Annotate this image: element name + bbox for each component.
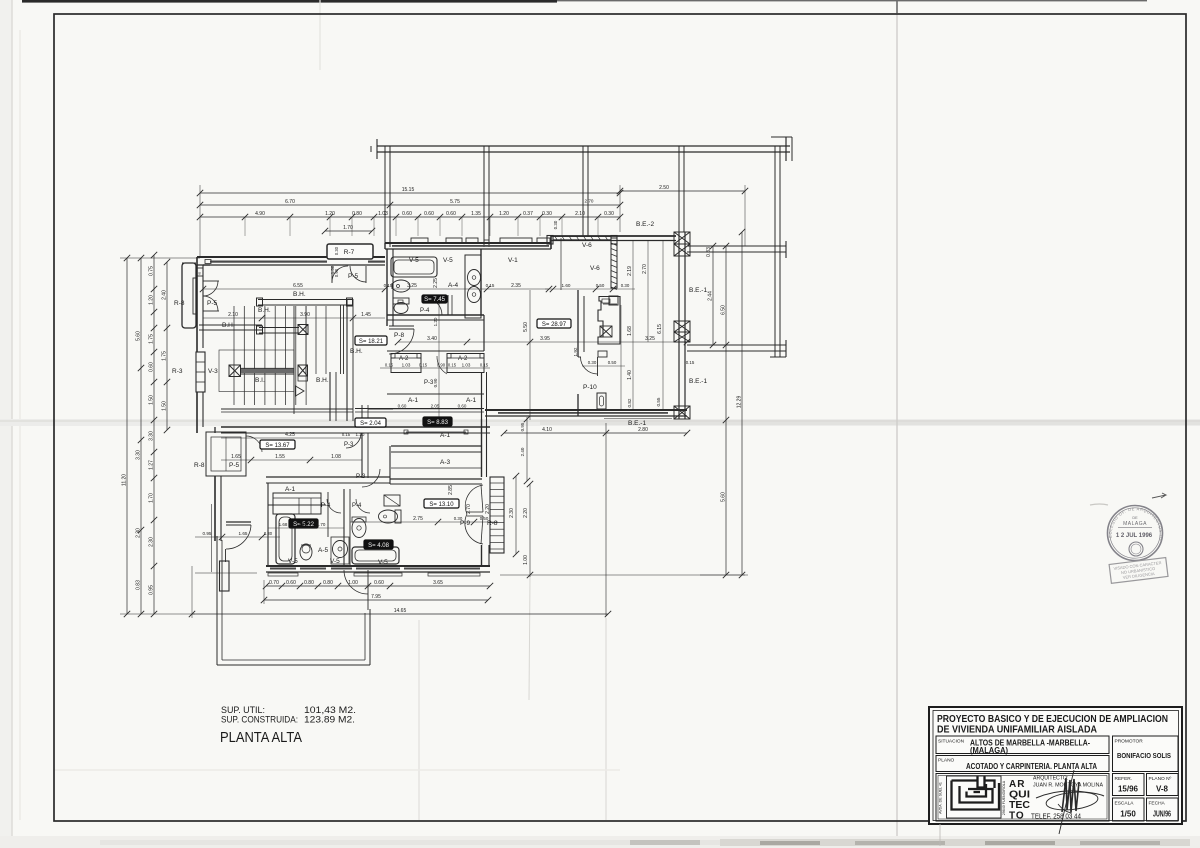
svg-text:0.60: 0.60 xyxy=(398,404,407,409)
svg-text:1.20: 1.20 xyxy=(356,432,365,437)
svg-text:R-3: R-3 xyxy=(172,368,183,375)
svg-text:0.60: 0.60 xyxy=(286,580,296,586)
svg-text:FECHA: FECHA xyxy=(1149,801,1166,807)
svg-text:PLANTA ALTA: PLANTA ALTA xyxy=(220,730,302,746)
svg-text:AVDA. DE SUEL 41: AVDA. DE SUEL 41 xyxy=(939,782,943,814)
svg-text:0.83: 0.83 xyxy=(706,247,712,257)
svg-text:1.65: 1.65 xyxy=(239,531,248,536)
svg-text:4.10: 4.10 xyxy=(542,427,552,433)
svg-text:1 2 JUL 1996: 1 2 JUL 1996 xyxy=(1116,533,1153,539)
svg-text:2.44: 2.44 xyxy=(708,291,714,301)
svg-text:0.50: 0.50 xyxy=(596,283,605,288)
svg-text:7.95: 7.95 xyxy=(371,594,381,600)
svg-text:0.30: 0.30 xyxy=(542,211,552,217)
svg-text:1.75: 1.75 xyxy=(149,334,155,344)
svg-text:0.80: 0.80 xyxy=(352,211,362,217)
svg-text:2.70: 2.70 xyxy=(642,264,648,274)
svg-text:0.80: 0.80 xyxy=(304,580,314,586)
svg-text:0.30: 0.30 xyxy=(588,360,597,365)
svg-text:A-1: A-1 xyxy=(466,397,477,404)
svg-text:0.15: 0.15 xyxy=(686,360,695,365)
svg-text:ACOTADO Y CARPINTERIA. PLAN: ACOTADO Y CARPINTERIA. PLANTA ALTA xyxy=(966,762,1097,771)
svg-text:S= 28.97: S= 28.97 xyxy=(542,322,567,328)
svg-text:1.70: 1.70 xyxy=(149,493,155,503)
svg-text:ARQUITECTO:: ARQUITECTO: xyxy=(1033,776,1068,782)
svg-text:2.30: 2.30 xyxy=(136,528,142,538)
svg-text:R-8: R-8 xyxy=(174,300,185,307)
svg-text:3.25: 3.25 xyxy=(407,283,417,289)
svg-text:P-4: P-4 xyxy=(321,503,331,509)
svg-text:1.03: 1.03 xyxy=(378,211,388,217)
svg-text:R-8: R-8 xyxy=(487,520,498,527)
svg-text:V-3: V-3 xyxy=(208,368,218,375)
svg-text:V-5: V-5 xyxy=(288,558,298,565)
svg-text:0.90: 0.90 xyxy=(433,378,438,387)
svg-text:0.70: 0.70 xyxy=(269,580,279,586)
svg-text:R-8: R-8 xyxy=(194,462,205,469)
svg-text:6.70: 6.70 xyxy=(285,199,295,205)
svg-text:2.35: 2.35 xyxy=(511,283,521,289)
svg-text:SITUACION: SITUACION xyxy=(938,739,965,745)
svg-text:0.30: 0.30 xyxy=(604,211,614,217)
svg-text:0.15: 0.15 xyxy=(480,363,489,368)
svg-text:2.40: 2.40 xyxy=(162,290,168,300)
svg-text:V-5: V-5 xyxy=(409,257,419,264)
svg-text:1.27: 1.27 xyxy=(149,460,155,470)
svg-text:P-4: P-4 xyxy=(352,503,362,509)
svg-text:2.70: 2.70 xyxy=(466,504,472,514)
svg-text:BONIFACIO SOLIS: BONIFACIO SOLIS xyxy=(1117,751,1171,760)
svg-text:6.55: 6.55 xyxy=(293,283,303,289)
svg-text:B.H.: B.H. xyxy=(258,307,271,314)
svg-text:REFER.: REFER. xyxy=(1115,776,1133,782)
svg-text:B.H.: B.H. xyxy=(293,291,306,298)
svg-text:6.15: 6.15 xyxy=(657,324,663,334)
svg-text:0.55: 0.55 xyxy=(656,397,661,406)
svg-text:1.50: 1.50 xyxy=(162,401,168,411)
svg-text:2.85: 2.85 xyxy=(448,485,454,495)
svg-text:1.00: 1.00 xyxy=(523,555,529,565)
svg-text:V-6: V-6 xyxy=(582,242,592,249)
svg-text:1.70: 1.70 xyxy=(317,522,326,527)
svg-text:15.15: 15.15 xyxy=(402,187,415,193)
svg-text:0.95: 0.95 xyxy=(203,531,212,536)
svg-text:1.00: 1.00 xyxy=(348,580,358,586)
svg-text:V-8: V-8 xyxy=(1156,785,1169,794)
svg-text:V-5: V-5 xyxy=(330,558,340,565)
svg-text:S= 18.21: S= 18.21 xyxy=(359,339,384,345)
svg-text:B.H.: B.H. xyxy=(350,348,363,355)
svg-text:5.60: 5.60 xyxy=(136,331,142,341)
svg-text:123.89 M2.: 123.89 M2. xyxy=(304,715,355,726)
svg-text:3.95: 3.95 xyxy=(540,336,550,342)
svg-text:3.65: 3.65 xyxy=(433,580,443,586)
svg-text:0.30: 0.30 xyxy=(454,516,463,521)
svg-text:2.40: 2.40 xyxy=(520,447,525,456)
svg-text:0.60: 0.60 xyxy=(446,211,456,217)
svg-text:14.65: 14.65 xyxy=(394,608,407,614)
svg-text:R-7: R-7 xyxy=(344,249,355,256)
svg-text:0.15: 0.15 xyxy=(342,432,351,437)
svg-text:B.H.: B.H. xyxy=(222,322,235,329)
svg-text:1.45: 1.45 xyxy=(361,312,371,318)
svg-text:3.30: 3.30 xyxy=(149,431,155,441)
svg-text:0.80: 0.80 xyxy=(323,580,333,586)
svg-text:A-1: A-1 xyxy=(408,397,419,404)
svg-text:1.65: 1.65 xyxy=(231,454,241,460)
svg-text:0.95: 0.95 xyxy=(149,585,155,595)
svg-text:A-2: A-2 xyxy=(458,356,468,362)
svg-text:B.E.-1: B.E.-1 xyxy=(689,378,707,385)
svg-text:A-1: A-1 xyxy=(285,486,296,493)
svg-text:0.30: 0.30 xyxy=(334,246,339,255)
svg-text:P-3: P-3 xyxy=(344,442,354,448)
svg-text:AR: AR xyxy=(1009,779,1025,790)
svg-text:0.60: 0.60 xyxy=(374,580,384,586)
svg-text:2.20: 2.20 xyxy=(485,504,491,514)
svg-text:A-3: A-3 xyxy=(440,459,451,466)
svg-text:1.40: 1.40 xyxy=(627,370,633,380)
svg-text:2.30: 2.30 xyxy=(149,537,155,547)
svg-text:P-9: P-9 xyxy=(460,520,471,527)
svg-text:1.55: 1.55 xyxy=(275,454,285,460)
svg-text:P-10: P-10 xyxy=(583,384,597,391)
svg-text:0.50: 0.50 xyxy=(480,516,489,521)
svg-text:B.E.-1: B.E.-1 xyxy=(628,420,646,427)
svg-text:0.95: 0.95 xyxy=(520,422,525,431)
svg-text:V-5: V-5 xyxy=(443,257,453,264)
svg-text:0.15: 0.15 xyxy=(448,363,457,368)
svg-text:1.20: 1.20 xyxy=(499,211,509,217)
svg-text:0.50: 0.50 xyxy=(608,360,617,365)
svg-text:5.75: 5.75 xyxy=(450,199,460,205)
svg-text:2.10: 2.10 xyxy=(575,211,585,217)
svg-text:4.25: 4.25 xyxy=(285,432,295,438)
svg-text:A-2: A-2 xyxy=(399,356,409,362)
svg-text:4.90: 4.90 xyxy=(255,211,265,217)
svg-text:TELEF. 258 03 44: TELEF. 258 03 44 xyxy=(1031,814,1081,821)
svg-text:0.60: 0.60 xyxy=(149,362,155,372)
svg-text:3.90: 3.90 xyxy=(300,312,310,318)
svg-text:1.68: 1.68 xyxy=(279,522,288,527)
svg-text:2.50: 2.50 xyxy=(659,185,669,191)
svg-text:JUAN R. MONTOYA MOLINA: JUAN R. MONTOYA MOLINA xyxy=(1033,783,1103,789)
svg-text:1.20: 1.20 xyxy=(325,211,335,217)
svg-text:A-5: A-5 xyxy=(318,547,329,554)
svg-text:5.50: 5.50 xyxy=(523,322,529,332)
svg-text:PROMOTOR: PROMOTOR xyxy=(1115,739,1144,745)
svg-text:5.60: 5.60 xyxy=(721,492,727,502)
svg-text:PLANO Nº: PLANO Nº xyxy=(1149,776,1172,782)
svg-text:DE: DE xyxy=(1132,516,1138,520)
svg-text:S= 13.67: S= 13.67 xyxy=(265,443,290,449)
svg-text:2.05: 2.05 xyxy=(431,404,440,409)
svg-text:29640 FUENGIROLA: 29640 FUENGIROLA xyxy=(1002,780,1006,815)
svg-text:1/50: 1/50 xyxy=(1120,810,1136,819)
svg-text:(MALAGA): (MALAGA) xyxy=(970,746,1008,755)
svg-text:0.15: 0.15 xyxy=(384,283,393,288)
svg-text:6.50: 6.50 xyxy=(721,305,727,315)
svg-text:0.75: 0.75 xyxy=(149,266,155,276)
svg-text:B.E.-1: B.E.-1 xyxy=(689,287,707,294)
svg-text:1.03: 1.03 xyxy=(462,363,471,368)
svg-text:2.20: 2.20 xyxy=(523,508,529,518)
svg-text:P-8: P-8 xyxy=(394,332,405,339)
svg-text:1.35: 1.35 xyxy=(471,211,481,217)
svg-text:3.30: 3.30 xyxy=(136,450,142,460)
svg-text:1.60: 1.60 xyxy=(562,283,571,288)
svg-text:1.50: 1.50 xyxy=(330,265,335,274)
svg-text:1.70: 1.70 xyxy=(343,225,353,231)
svg-text:2.80: 2.80 xyxy=(638,427,648,433)
svg-text:B.E.-2: B.E.-2 xyxy=(636,221,654,228)
svg-text:0.15: 0.15 xyxy=(486,283,495,288)
svg-text:S= 13.10: S= 13.10 xyxy=(429,502,454,508)
svg-text:0.15: 0.15 xyxy=(419,363,428,368)
svg-text:S= 7.45: S= 7.45 xyxy=(424,297,446,303)
svg-text:2.25: 2.25 xyxy=(433,278,439,288)
svg-text:S= 4.08: S= 4.08 xyxy=(368,543,390,549)
svg-text:P-4: P-4 xyxy=(420,308,430,314)
svg-text:ESCALA: ESCALA xyxy=(1115,801,1135,807)
svg-text:B.I.: B.I. xyxy=(255,377,265,384)
svg-text:PLANO: PLANO xyxy=(938,758,955,764)
svg-text:JUN/96: JUN/96 xyxy=(1153,810,1171,819)
svg-text:0.60: 0.60 xyxy=(402,211,412,217)
svg-text:0.82: 0.82 xyxy=(627,398,632,407)
svg-text:2.10: 2.10 xyxy=(228,312,238,318)
svg-text:1.03: 1.03 xyxy=(402,363,411,368)
svg-text:DE VIVIENDA UNIFAMILIAR AIS: DE VIVIENDA UNIFAMILIAR AISLADA xyxy=(937,725,1097,736)
svg-text:1.92: 1.92 xyxy=(573,347,578,356)
svg-text:2.75: 2.75 xyxy=(413,516,423,522)
svg-text:0.30: 0.30 xyxy=(621,283,630,288)
svg-text:P-5: P-5 xyxy=(229,462,240,469)
svg-text:0.60: 0.60 xyxy=(424,211,434,217)
svg-text:12.29: 12.29 xyxy=(737,396,743,409)
svg-text:PROYECTO BASICO Y DE EJECU: PROYECTO BASICO Y DE EJECUCION DE AMPLIA… xyxy=(937,714,1168,725)
svg-text:1.68: 1.68 xyxy=(627,326,633,336)
svg-text:TO: TO xyxy=(1009,811,1025,822)
svg-text:15/96: 15/96 xyxy=(1118,785,1139,794)
svg-text:2.70: 2.70 xyxy=(585,199,594,204)
svg-text:1.75: 1.75 xyxy=(162,351,168,361)
svg-text:TEC: TEC xyxy=(1009,800,1030,811)
svg-text:0.90: 0.90 xyxy=(437,363,446,368)
svg-text:A-4: A-4 xyxy=(448,282,459,289)
svg-text:0.60: 0.60 xyxy=(458,404,467,409)
svg-text:2.30: 2.30 xyxy=(509,508,515,518)
svg-text:A-1: A-1 xyxy=(440,432,451,439)
svg-text:B.H.: B.H. xyxy=(316,377,329,384)
svg-text:S= 2.04: S= 2.04 xyxy=(360,421,382,427)
svg-text:11.20: 11.20 xyxy=(122,474,128,486)
svg-text:P-5: P-5 xyxy=(348,273,359,280)
svg-text:0.37: 0.37 xyxy=(523,211,533,217)
svg-text:V-5: V-5 xyxy=(378,559,388,566)
svg-text:3.40: 3.40 xyxy=(427,336,437,342)
svg-text:1.20: 1.20 xyxy=(149,295,155,305)
svg-text:1.08: 1.08 xyxy=(331,454,341,460)
svg-text:0.15: 0.15 xyxy=(385,363,394,368)
svg-text:S= 8.83: S= 8.83 xyxy=(427,420,449,426)
svg-text:1.20: 1.20 xyxy=(433,317,438,326)
svg-text:2.19: 2.19 xyxy=(627,266,633,276)
svg-text:3.25: 3.25 xyxy=(645,336,655,342)
svg-text:QUI: QUI xyxy=(1009,790,1030,801)
svg-text:V-6: V-6 xyxy=(590,265,600,272)
svg-text:0.83: 0.83 xyxy=(136,580,142,590)
svg-text:V-1: V-1 xyxy=(508,257,518,264)
svg-text:MALAGA: MALAGA xyxy=(1123,521,1147,527)
svg-text:0.30: 0.30 xyxy=(299,522,308,527)
svg-text:0.30: 0.30 xyxy=(553,220,558,229)
svg-text:SUP. CONSTRUIDA:: SUP. CONSTRUIDA: xyxy=(221,715,298,726)
svg-text:P-5: P-5 xyxy=(207,300,218,307)
svg-text:1.50: 1.50 xyxy=(149,395,155,405)
